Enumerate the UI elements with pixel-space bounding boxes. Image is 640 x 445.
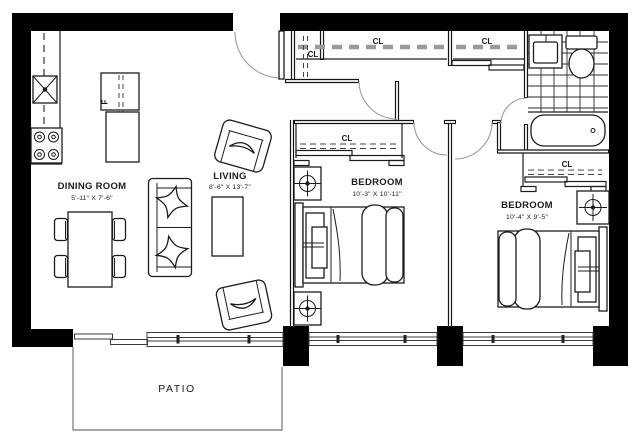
dining-table [68,212,112,287]
wall-bottom-left [12,329,73,347]
pillar-2 [437,326,463,366]
bathroom-door-arc [501,98,527,124]
dining-chair [113,256,126,278]
wall-left [12,13,31,347]
living-room-dims: 8'-6" X 13'-7" [209,184,251,191]
pillar-3 [593,326,628,366]
closet-sliding-door [350,156,404,161]
patio-label: PATIO [158,383,195,395]
bedroom2-dims: 10'-4" X 9'-5" [506,214,548,221]
armchair [213,118,273,173]
floor-plan: F [0,0,640,445]
bedroom2-label: BEDROOM [501,200,553,211]
closet-stub [294,161,309,166]
wall-right [609,13,628,366]
dining-chair [55,219,68,241]
entry-closet-label: CL [308,50,319,59]
bathroom-sink-icon [529,35,562,68]
headboard [295,203,303,287]
dining-room-label: DINING ROOM [58,181,127,192]
dining-room-dims: 5'-11" X 7'-6" [71,195,113,202]
dining-set [55,212,126,287]
living-window [147,333,283,347]
bedroom1-closet-label: CL [342,134,353,143]
bedroom1-door-arc [414,122,447,155]
duvet-roll [499,232,516,306]
closet-sliding-door [489,65,524,70]
bathtub-icon [531,115,605,146]
wall-top-left [12,13,233,31]
fridge-label: F [101,99,110,104]
closet-sliding-door [452,61,491,66]
bedroom2-window [463,333,593,346]
duvet-roll [362,205,388,285]
kitchen-cabinet [106,112,139,162]
bedroom1-closet [294,123,404,166]
kitchen-sink-icon [33,76,57,103]
entry-door-arc [235,32,281,78]
bathroom [528,31,608,146]
closet-sliding-door [565,182,606,187]
closet-stub [521,187,536,192]
armchair [215,279,273,331]
entry-door-leaf [279,31,284,79]
dining-chair [113,219,126,241]
bedroom1-dims: 10'-3" X 10'-11" [352,191,402,198]
closet-sliding-door [296,151,352,156]
living-room-label: LIVING [213,171,246,182]
radiator-icon [294,167,321,200]
bedroom2-door-arc [455,122,492,159]
bedroom2-closet [521,153,606,192]
closet-sliding-door [525,177,567,182]
bedroom1-window [309,333,437,346]
windows [75,333,594,347]
radiator-icon [294,292,321,325]
hall-closet-door-arc [359,81,397,119]
dining-chair [55,256,68,278]
bedroom1-label: BEDROOM [351,177,403,188]
hall-closet-2-label: CL [482,37,493,46]
doors [235,31,527,159]
wall-top-right [280,13,628,31]
bed [295,203,404,287]
sofa [149,179,192,277]
closet-stub [389,161,404,166]
bedroom2-closet-label: CL [562,160,573,169]
bed [498,227,607,311]
duvet-roll [386,208,403,282]
headboard [599,227,607,311]
coffee-table [212,197,243,256]
pillar-1 [283,326,309,366]
stove-icon [31,128,62,163]
hall-closet-1-label: CL [373,37,384,46]
kitchen: F [31,31,139,164]
duvet-roll [514,229,540,309]
radiator-icon [577,191,609,224]
patio-sliding-door [75,334,148,345]
toilet-icon [566,36,597,78]
